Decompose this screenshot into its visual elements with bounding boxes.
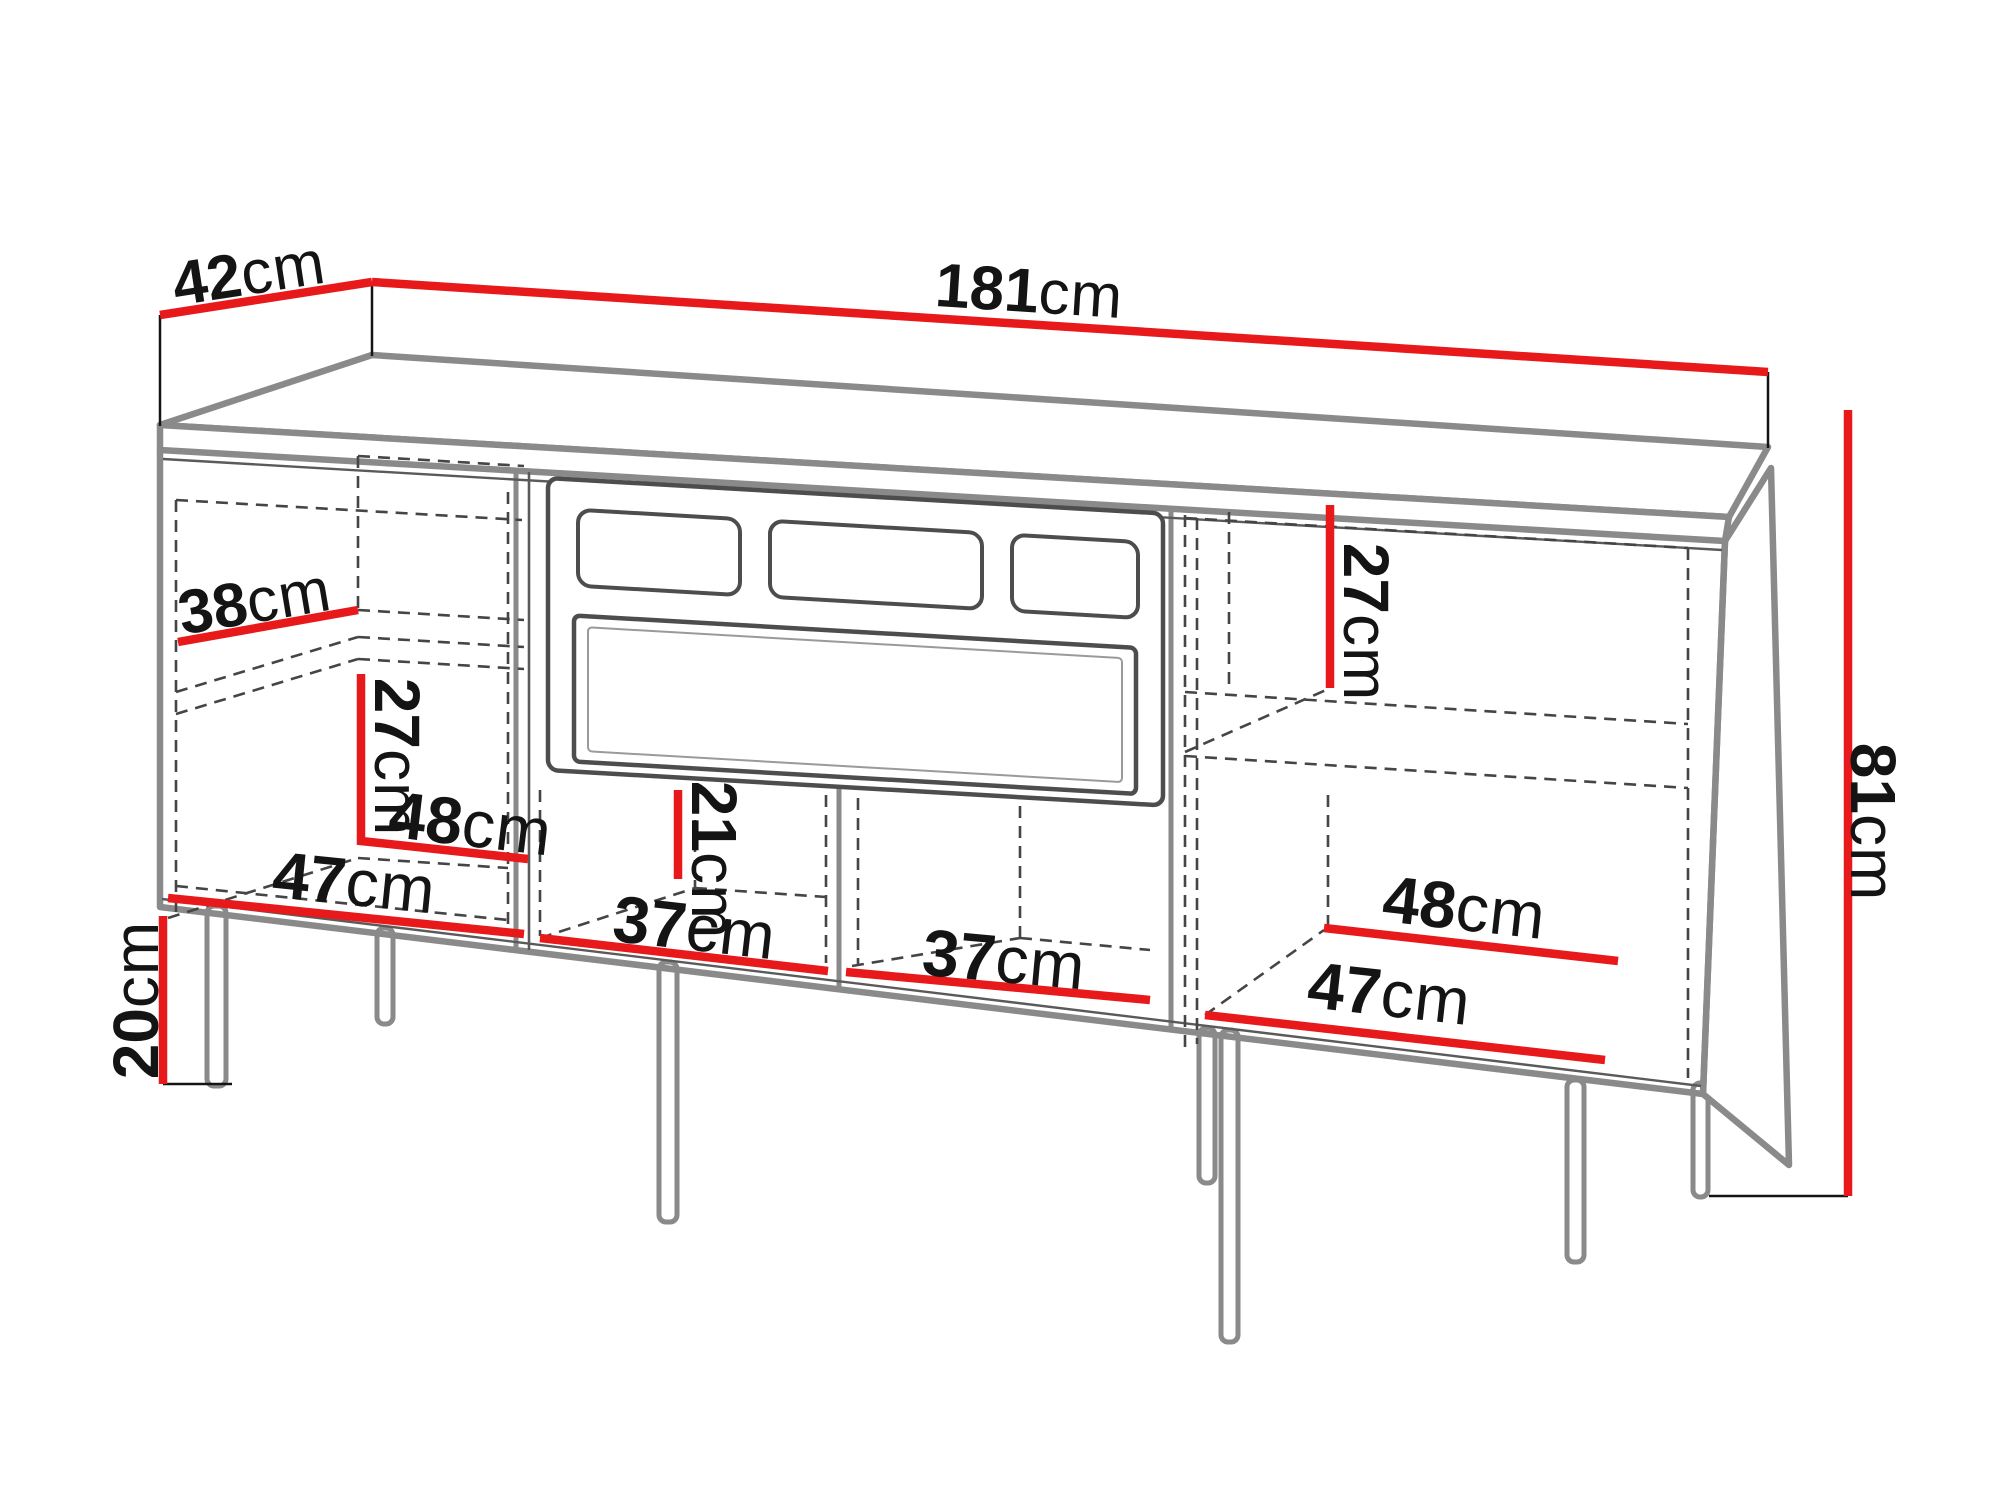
left-shelf-front-edge-1 <box>358 637 524 647</box>
furniture-dimension-diagram: 42cm 181cm 81cm 20cm 38cm 27cm 48cm 47cm… <box>0 0 2000 1500</box>
leg-back-middle-right <box>1199 1028 1215 1183</box>
leg-front-right <box>1567 1080 1584 1262</box>
leg-back-left <box>377 928 393 1024</box>
left-shelf-front-edge-2 <box>358 659 524 669</box>
left-interior-top-line <box>176 500 522 520</box>
vent-slot-1 <box>578 510 740 595</box>
dim-label-width: 181cm <box>933 251 1125 332</box>
leg-front-middle-left <box>659 962 677 1222</box>
dim-label-leg-height: 20cm <box>100 921 172 1080</box>
dim-label-left-shelf-depth: 38cm <box>173 555 336 648</box>
dim-label-depth: 42cm <box>168 228 330 320</box>
right-shelf-depth-diagonal <box>1185 690 1326 752</box>
diagram-canvas: 42cm 181cm 81cm 20cm 38cm 27cm 48cm 47cm… <box>0 0 2000 1500</box>
fireplace-panel <box>548 478 1163 805</box>
leg-front-left <box>207 906 226 1086</box>
vent-slot-2 <box>770 521 982 609</box>
dim-label-right-upper-height: 27cm <box>1330 543 1402 702</box>
left-shelf-underside-2 <box>176 659 358 714</box>
vent-slot-3 <box>1012 535 1138 618</box>
dim-label-height: 81cm <box>1837 743 1909 902</box>
left-shelf-back-edge <box>358 610 524 620</box>
right-shelf-line-2 <box>1185 756 1688 788</box>
dim-label-middle-left-niche-width: 37cm <box>609 881 780 973</box>
dim-label-middle-right-niche-width: 37cm <box>919 915 1089 1004</box>
leg-front-middle-right <box>1221 1030 1238 1342</box>
